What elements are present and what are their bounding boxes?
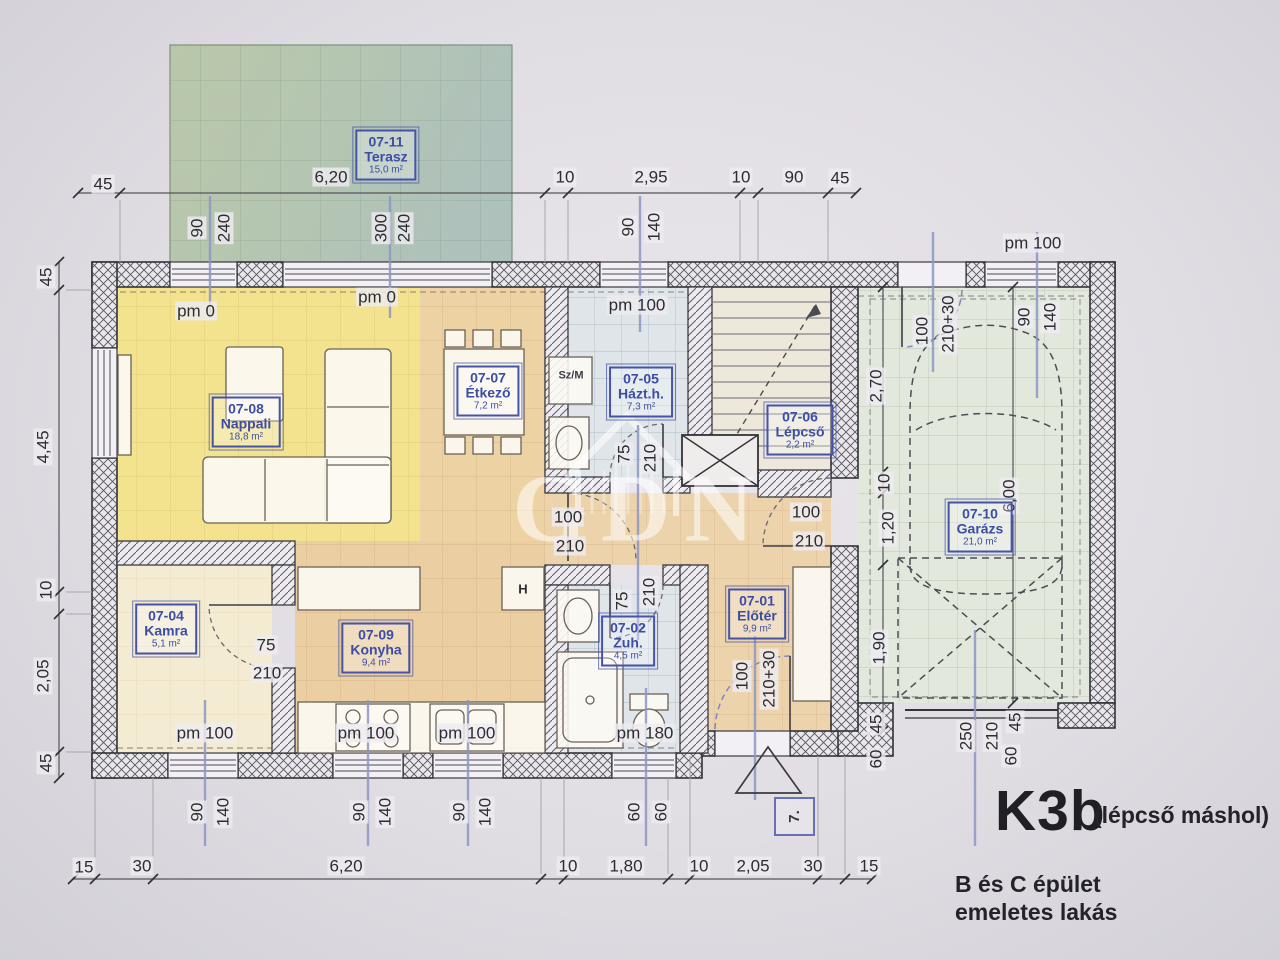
room-area: 21,0 m² [957,537,1004,549]
dim-label: 75 [615,443,634,466]
room-code: 07-05 [618,371,664,387]
dim-label: 240 [395,212,414,244]
dim-label: 2,70 [867,367,886,404]
dim-label: 75 [255,636,278,655]
room-label: 07-08 Nappali 18,8 m² [212,397,281,448]
dim-label: 2,95 [632,168,669,187]
room-name: Garázs [957,522,1004,537]
room-code: 07-07 [465,370,510,386]
room-label: 07-09 Konyha 9,4 m² [341,623,410,674]
room-label: 07-05 Házt.h. 7,3 m² [609,367,673,418]
chair [445,330,465,347]
dim-label: 10 [730,168,753,187]
dim-label: 75 [613,590,632,613]
room-name: Előtér [737,609,777,624]
wardrobe [793,567,831,701]
dim-label: 10 [557,857,580,876]
dim-label: pm 180 [615,724,676,743]
room-code: 07-06 [775,409,824,425]
room-area: 4,5 m² [610,651,646,663]
room-area: 18,8 m² [221,432,272,444]
building-line-2: emeletes lakás [955,898,1117,926]
room-code: 07-08 [221,401,272,417]
dim-label: 30 [802,857,825,876]
chair [501,330,521,347]
dim-label: pm 0 [356,288,398,307]
dim-label: 60 [1002,745,1021,768]
dim-label: 100 [733,660,752,692]
room-label: 07-07 Étkező 7,2 m² [456,366,519,417]
dim-label: 100 [552,508,584,527]
room-code: 07-09 [350,627,401,643]
dim-label: 60 [652,801,671,824]
room-label: 07-04 Kamra 5,1 m² [135,604,197,655]
dim-label: 90 [1015,306,1034,329]
dim-label: 30 [131,857,154,876]
dim-label: 300 [372,212,391,244]
dim-label: 2,05 [734,857,771,876]
dim-label: 45 [37,752,56,775]
dim-label: pm 0 [175,302,217,321]
dim-label: 240 [215,212,234,244]
chair [473,330,493,347]
dim-label: 210 [983,720,1002,752]
dim-label: 45 [1006,711,1025,734]
dim-label: pm 100 [1003,234,1064,253]
plan-code-note: (lépcső máshol) [1094,802,1269,829]
room-label: 07-06 Lépcső 2,2 m² [766,405,833,456]
room-label: 07-10 Garázs 21,0 m² [948,502,1013,553]
room-name: Étkező [465,386,510,401]
dim-label: 10 [688,857,711,876]
dim-label: 45 [867,713,886,736]
dim-label: 60 [625,801,644,824]
room-code: 07-10 [957,506,1004,522]
room-area: 9,9 m² [737,624,777,636]
chair [501,437,521,454]
kitchen-counter [298,567,420,610]
sofa-horizontal [203,457,391,523]
room-name: Terasz [364,150,407,165]
room-area: 7,3 m² [618,402,664,414]
room-label: 07-01 Előtér 9,9 m² [728,589,786,640]
dim-label: 4,45 [34,428,53,465]
dim-label: 250 [957,720,976,752]
building-description: B és C épület emeletes lakás [955,870,1117,926]
dim-label: 1,20 [879,509,898,546]
dim-label: 210 [793,532,825,551]
dim-label: 140 [476,796,495,828]
dim-label: 210 [640,576,659,608]
room-name: Zuh. [610,636,646,651]
room-name: Lépcső [775,425,824,440]
room-label: 07-11 Terasz 15,0 m² [355,130,416,181]
room-name: Konyha [350,643,401,658]
dim-label: 140 [214,796,233,828]
dim-label: 15 [73,858,96,877]
dim-label: 140 [376,796,395,828]
radiator [118,355,131,455]
room-area: 15,0 m² [364,165,407,177]
plan-code: K3b [995,778,1106,844]
dim-label: 6,20 [327,857,364,876]
room-name: Házt.h. [618,387,664,402]
room-area: 9,4 m² [350,658,401,670]
dim-label: 90 [619,216,638,239]
dim-label: 90 [188,217,207,240]
dim-label: 210 [554,537,586,556]
dim-label: 210 [641,442,660,474]
room-code: 07-04 [144,608,188,624]
dim-label: 10 [37,579,56,602]
entrance-number-stamp: 7. [774,797,815,836]
dim-label: 60 [867,748,886,771]
dim-label: 140 [1041,301,1060,333]
dim-label: 210 [251,664,283,683]
room-area: 5,1 m² [144,639,188,651]
dim-label: 210+30 [939,293,958,354]
dim-label: 6,20 [312,168,349,187]
dim-label: 90 [783,168,806,187]
room-label: 07-02 Zuh. 4,5 m² [601,616,655,667]
dim-label: Sz/M [556,370,585,383]
dim-label: 45 [829,169,852,188]
dim-label: H [516,582,529,597]
dim-label: 10 [554,168,577,187]
room-area: 7,2 m² [465,401,510,413]
dim-label: 1,90 [870,629,889,666]
floor-plan-photo: GDN 07-11 Terasz 15,0 m² 07-08 Nappali 1… [0,0,1280,960]
room-code: 07-02 [610,620,646,636]
dim-label: pm 100 [336,724,397,743]
dim-label: 100 [790,503,822,522]
entrance-number: 7. [786,810,803,823]
dim-label: 10 [875,472,894,495]
dim-label: 100 [913,315,932,347]
room-code: 07-11 [364,134,407,150]
chair [473,437,493,454]
terrace-area [170,45,512,287]
chair [445,437,465,454]
dim-label: 45 [37,266,56,289]
room-name: Kamra [144,624,188,639]
room-name: Nappali [221,417,272,432]
dim-label: 15 [858,857,881,876]
dim-label: 210+30 [760,648,779,709]
toilet-tank [630,694,668,710]
dim-label: 1,80 [607,857,644,876]
dim-label: 90 [350,801,369,824]
room-code: 07-01 [737,593,777,609]
dim-label: pm 100 [175,724,236,743]
dim-label: pm 100 [437,724,498,743]
dim-label: pm 100 [607,296,668,315]
dim-label: 90 [188,801,207,824]
dim-label: 2,05 [34,657,53,694]
building-line-1: B és C épület [955,870,1117,898]
room-area: 2,2 m² [775,440,824,452]
dim-label: 90 [450,801,469,824]
dim-label: 140 [645,211,664,243]
dim-label: 45 [92,175,115,194]
